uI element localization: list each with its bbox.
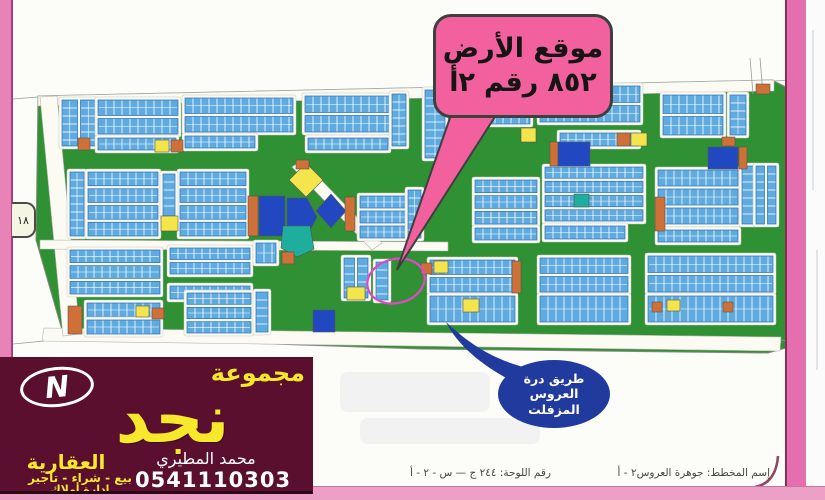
special-plot <box>722 137 735 146</box>
special-plot <box>723 302 733 312</box>
page-number-tab: ١٨ <box>12 202 36 238</box>
special-plot <box>617 133 630 146</box>
real-estate-flyer: ١٨ موقع الأرض أ٢ رقم ٨٥٢ طريق درة العروس… <box>0 0 825 500</box>
plot-strip <box>768 166 777 224</box>
special-plot <box>667 300 680 311</box>
special-plot <box>171 140 183 152</box>
road-name-bubble: طريق درة العروس المزفلت <box>498 360 610 428</box>
page-edge-margin <box>806 0 825 486</box>
road-name-line: طريق درة <box>524 371 585 387</box>
plate-number-label: رقم اللوحة: ٢٤٤ ج — س - ٢ - أ <box>378 467 583 479</box>
special-plot <box>512 261 521 293</box>
callout-title: موقع الأرض <box>443 34 603 64</box>
plot-strip <box>163 174 175 216</box>
special-plot <box>282 252 294 264</box>
scan-artifact <box>360 418 540 444</box>
special-plot <box>259 196 285 236</box>
special-plot <box>78 138 90 150</box>
special-plot <box>155 140 169 152</box>
special-plot <box>558 142 590 166</box>
special-plot <box>521 128 536 142</box>
special-plot <box>313 310 335 332</box>
survey-line <box>13 97 38 99</box>
scan-artifact <box>816 250 818 370</box>
scan-artifact <box>340 372 490 412</box>
special-plot <box>152 308 164 319</box>
special-plot <box>434 261 448 273</box>
page-number: ١٨ <box>17 214 29 227</box>
services-line-2: إدارة أملاك <box>30 483 130 494</box>
brand-banner: مجموعة N نجد العقارية بيع - شراء - تاجير… <box>0 357 313 494</box>
special-plot <box>296 160 309 169</box>
special-plot <box>652 302 662 312</box>
agent-name: محمد المطيري <box>140 449 272 468</box>
special-plot <box>739 147 747 169</box>
plot-strip <box>756 166 765 224</box>
special-plot <box>463 299 479 312</box>
number-word: رقم <box>484 68 538 98</box>
special-plot <box>550 142 558 166</box>
right-frame-stripe <box>785 0 806 500</box>
special-plot <box>136 306 149 317</box>
phone-number: 0541110303 <box>135 468 290 492</box>
plot-strip <box>256 292 268 332</box>
special-plot <box>631 133 647 146</box>
plan-name-label: إسم المخطط: جوهرة العروس٢ - أ <box>588 467 770 479</box>
block-code: أ٢ <box>449 68 475 98</box>
special-plot <box>345 197 355 231</box>
special-plot <box>655 197 665 231</box>
land-location-callout: موقع الأرض أ٢ رقم ٨٥٢ <box>433 14 613 118</box>
callout-plot-line: أ٢ رقم ٨٥٢ <box>449 68 597 98</box>
brand-name: نجد <box>40 381 305 459</box>
special-plot <box>161 216 178 231</box>
scan-artifact <box>812 30 814 190</box>
plot-strip <box>742 166 754 224</box>
special-plot <box>756 84 770 94</box>
special-plot <box>708 147 738 169</box>
special-plot <box>68 306 82 334</box>
plot-number: ٨٥٢ <box>547 68 596 98</box>
special-plot <box>248 196 258 236</box>
special-plot <box>574 194 589 207</box>
special-plot <box>347 287 365 300</box>
road-name-line: المزفلت <box>528 402 580 418</box>
road-name-line: العروس <box>530 386 579 402</box>
survey-line <box>13 341 44 344</box>
